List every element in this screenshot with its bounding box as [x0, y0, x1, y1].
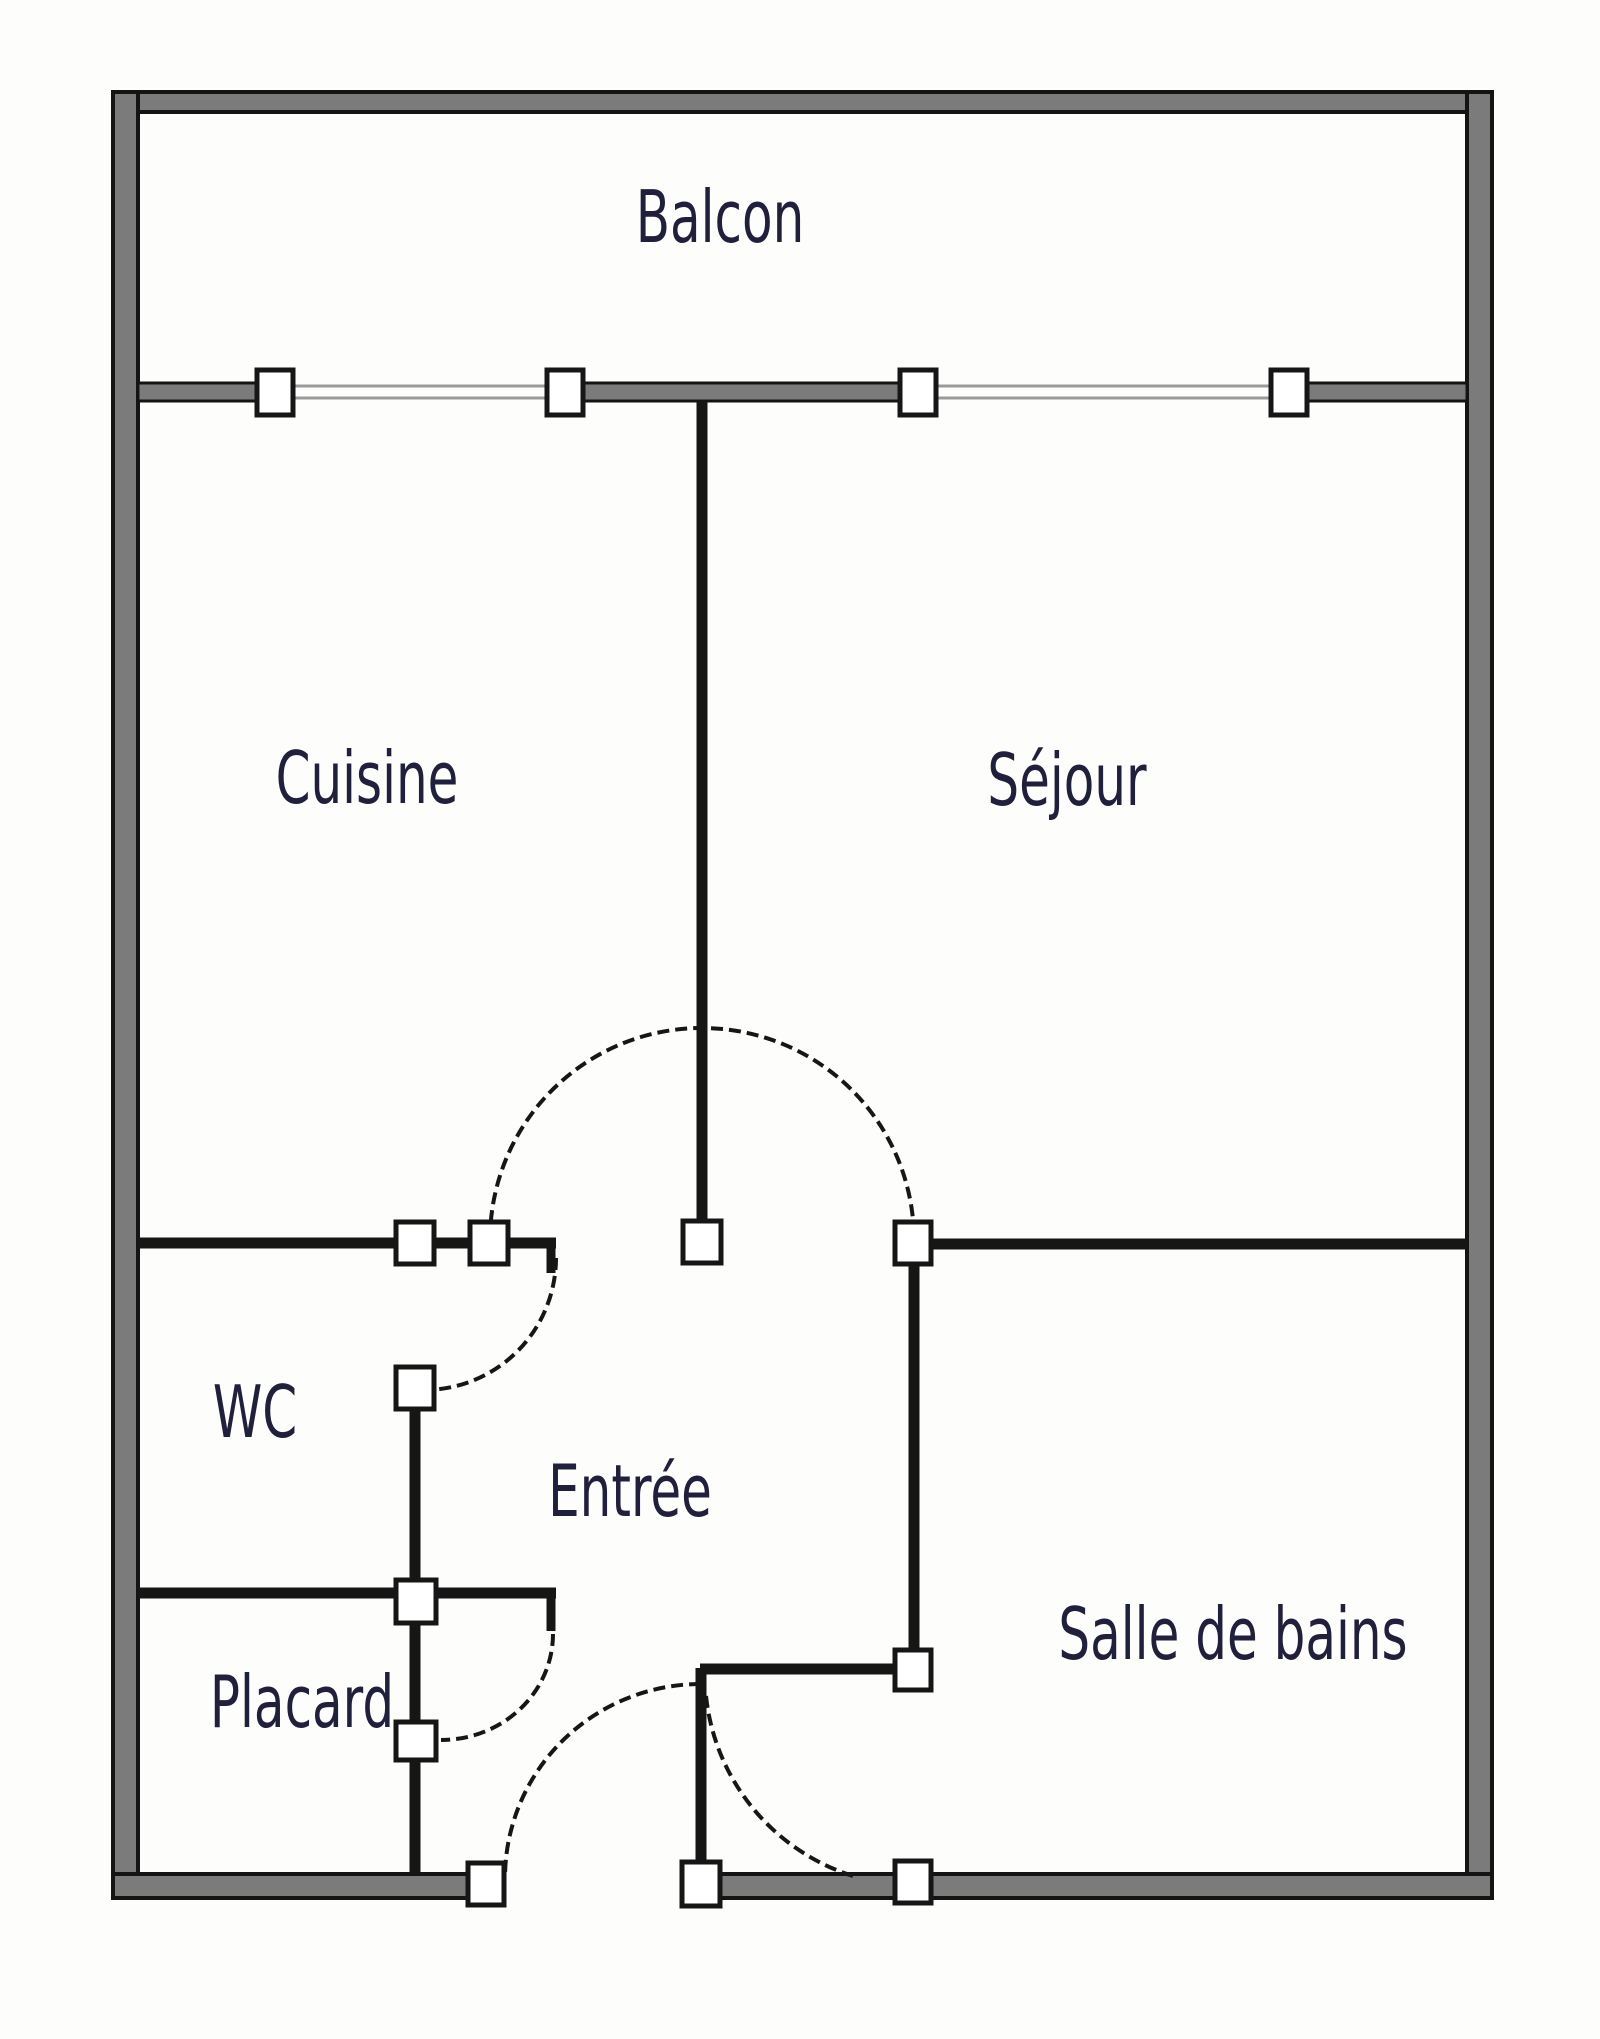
placard-door-arc	[441, 1634, 553, 1740]
junction-square-entrance-jamb-left	[468, 1863, 504, 1905]
junction-square-placard-mid	[396, 1722, 436, 1760]
window-wall-segment	[583, 383, 900, 401]
junction-squares	[396, 1221, 931, 1906]
room-label-entree: Entrée	[548, 1448, 712, 1533]
floor-plan-page: Balcon Cuisine Séjour WC Entrée Placard …	[0, 0, 1600, 2039]
junction-square-bathroom-corner	[895, 1650, 931, 1690]
balcony-window-wall	[138, 370, 1467, 415]
room-label-balcon: Balcon	[636, 174, 805, 259]
room-label-cuisine: Cuisine	[276, 735, 459, 820]
window-wall-segment	[138, 383, 258, 401]
room-label-placard: Placard	[210, 1659, 394, 1744]
junction-square-wc-wall-top	[396, 1367, 434, 1409]
junction-square-placard-corner	[396, 1580, 436, 1623]
outer-wall-top	[113, 92, 1492, 112]
window-jamb-square	[900, 370, 936, 415]
wc-door-arc	[424, 1258, 556, 1390]
bathroom-door-arc	[706, 1696, 853, 1876]
junction-square-bathroom-bottom	[895, 1861, 931, 1903]
junction-square-bathroom-top	[895, 1222, 931, 1264]
outer-wall-left	[113, 92, 138, 1898]
entrance-door-arc	[505, 1684, 701, 1878]
window-jamb-square	[257, 370, 293, 415]
room-labels: Balcon Cuisine Séjour WC Entrée Placard …	[210, 174, 1408, 1744]
floor-plan-drawing: Balcon Cuisine Séjour WC Entrée Placard …	[0, 0, 1600, 2039]
room-label-wc: WC	[213, 1369, 297, 1454]
window-jamb-square	[1271, 370, 1307, 415]
junction-square-wc-jamb-right	[470, 1222, 508, 1264]
outer-wall-right	[1467, 92, 1492, 1898]
window-jamb-square	[547, 370, 583, 415]
room-label-sejour: Séjour	[987, 737, 1147, 822]
outer-wall-bottom-right-of-entrance	[701, 1874, 1492, 1898]
window-wall-segment	[1307, 383, 1467, 401]
junction-square-entrance-hinge	[682, 1862, 720, 1906]
junction-square-wc-jamb-left	[396, 1222, 434, 1264]
junction-square-divider-bottom	[683, 1221, 721, 1263]
outer-wall-bottom-left-of-entrance	[113, 1874, 487, 1898]
room-label-salle-de-bains: Salle de bains	[1058, 1591, 1407, 1676]
